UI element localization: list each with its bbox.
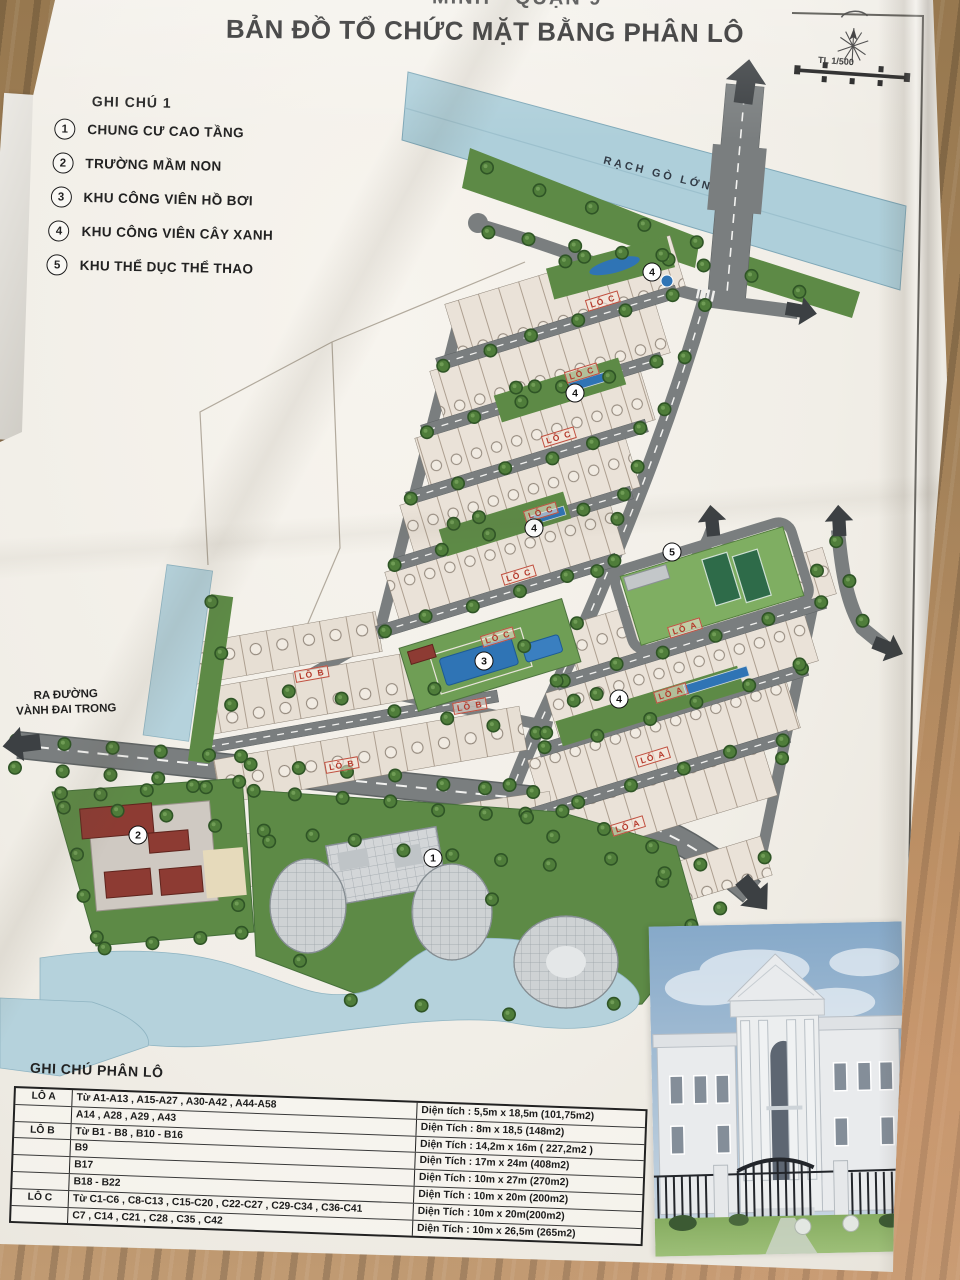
tree-icon — [643, 712, 657, 726]
legend-item-label: KHU THỂ DỤC THỂ THAO — [80, 258, 254, 277]
tree-icon — [689, 695, 703, 709]
pond — [661, 275, 673, 287]
tree-icon — [154, 745, 168, 759]
tree-icon — [247, 784, 261, 798]
tree-icon — [344, 993, 358, 1007]
tree-icon — [202, 748, 216, 762]
tree-icon — [204, 595, 218, 609]
tree-icon — [538, 740, 552, 754]
page-title: BẢN ĐỒ TỔ CHỨC MẶT BẰNG PHÂN LÔ — [130, 13, 840, 50]
map-marker-4: 4 — [610, 690, 629, 709]
tree-icon — [539, 726, 553, 740]
tree-icon — [387, 704, 401, 718]
tree-icon — [637, 218, 651, 232]
tree-icon — [481, 225, 495, 239]
tree-icon — [658, 402, 672, 416]
photographed-site-plan-scene: { "header": { "top_line_fragment": "MINH… — [0, 0, 960, 1280]
tree-icon — [447, 517, 461, 531]
tree-icon — [713, 901, 727, 915]
tree-icon — [514, 395, 528, 409]
tree-icon — [586, 436, 600, 450]
tree-icon — [645, 840, 659, 854]
map-marker-4: 4 — [566, 384, 585, 403]
tree-icon — [814, 595, 828, 609]
tree-icon — [348, 833, 362, 847]
tree-icon — [517, 639, 531, 653]
tree-icon — [208, 819, 222, 833]
tree-icon — [435, 543, 449, 557]
tree-icon — [610, 657, 624, 671]
tree-icon — [420, 425, 434, 439]
tree-icon — [494, 853, 508, 867]
parcel-group-cell — [14, 1138, 72, 1156]
tree-icon — [186, 779, 200, 793]
tree-icon — [560, 569, 574, 583]
tree-icon — [723, 745, 737, 759]
tree-icon — [383, 794, 397, 808]
tree-icon — [199, 780, 213, 794]
legend-number-badge: 1 — [54, 118, 75, 139]
tree-icon — [624, 778, 638, 792]
tree-icon — [571, 795, 585, 809]
tree-icon — [678, 350, 692, 364]
tree-icon — [388, 558, 402, 572]
map-marker-4: 4 — [643, 263, 662, 282]
tree-icon — [111, 804, 125, 818]
parcel-group-cell: LÔ B — [14, 1122, 72, 1140]
tree-icon — [480, 161, 494, 175]
parcel-table: LÔ ATừ A1-A13 , A15-A27 , A30-A42 , A44-… — [9, 1086, 648, 1247]
tree-icon — [666, 288, 680, 302]
tree-icon — [745, 269, 759, 283]
tree-icon — [57, 737, 71, 751]
tree-icon — [482, 528, 496, 542]
tree-icon — [472, 510, 486, 524]
tree-icon — [842, 574, 856, 588]
tree-icon — [793, 657, 807, 671]
tree-icon — [436, 359, 450, 373]
map-marker-5: 5 — [663, 543, 682, 562]
tree-icon — [693, 858, 707, 872]
tree-icon — [415, 999, 429, 1013]
tree-icon — [615, 246, 629, 260]
tree-icon — [509, 381, 523, 395]
legend-number-badge: 5 — [46, 254, 67, 275]
building-photo — [649, 921, 909, 1256]
legend-item-2: 2TRƯỜNG MẦM NON — [48, 152, 408, 181]
tree-icon — [590, 564, 604, 578]
legend-item-3: 3KHU CÔNG VIÊN HỒ BƠI — [48, 186, 408, 215]
tree-icon — [520, 810, 534, 824]
kindergarten-area — [52, 778, 254, 946]
tree-icon — [378, 624, 392, 638]
tree-icon — [214, 646, 228, 660]
tree-icon — [607, 997, 621, 1011]
map-paper-sheet: MINH - QUẬN 9 BẢN ĐỒ TỔ CHỨC MẶT BẰNG PH… — [0, 0, 960, 1280]
tree-icon — [633, 421, 647, 435]
tree-icon — [232, 775, 246, 789]
tree-icon — [567, 694, 581, 708]
tree-icon — [631, 460, 645, 474]
legend-item-4: 4KHU CÔNG VIÊN CÂY XANH — [47, 220, 407, 249]
legend-number-badge: 3 — [50, 186, 71, 207]
tree-icon — [77, 889, 91, 903]
parcel-group-cell — [11, 1206, 69, 1224]
tree-icon — [545, 451, 559, 465]
tree-icon — [617, 487, 631, 501]
tree-icon — [761, 612, 775, 626]
tree-icon — [479, 807, 493, 821]
tree-icon — [513, 584, 527, 598]
tree-icon — [610, 512, 624, 526]
tree-icon — [655, 248, 669, 262]
legend-item-5: 5KHU THỂ DỤC THỂ THAO — [46, 254, 406, 283]
tree-icon — [570, 616, 584, 630]
tree-icon — [618, 303, 632, 317]
tree-icon — [604, 852, 618, 866]
parcel-group-cell: LÔ C — [12, 1189, 70, 1207]
tree-icon — [597, 822, 611, 836]
tree-icon — [555, 804, 569, 818]
legend-item-1: 1CHUNG CƯ CAO TẦNG — [49, 118, 409, 147]
tree-icon — [388, 768, 402, 782]
tree-icon — [335, 692, 349, 706]
tree-icon — [576, 503, 590, 517]
tree-icon — [235, 926, 249, 940]
tree-icon — [543, 858, 557, 872]
tree-icon — [571, 313, 585, 327]
legend-list: 1CHUNG CƯ CAO TẦNG2TRƯỜNG MẦM NON3KHU CÔ… — [46, 118, 409, 283]
tree-icon — [776, 733, 790, 747]
tree-icon — [522, 232, 536, 246]
tree-icon — [658, 866, 672, 880]
tree-icon — [70, 847, 84, 861]
parcel-group-cell: LÔ A — [15, 1088, 73, 1106]
legend-item-label: KHU CÔNG VIÊN HỒ BƠI — [83, 190, 253, 209]
tree-icon — [467, 410, 481, 424]
tree-icon — [288, 787, 302, 801]
parcel-group-cell — [13, 1155, 71, 1173]
tree-icon — [602, 370, 616, 384]
tree-icon — [404, 492, 418, 506]
tree-icon — [292, 761, 306, 775]
tree-icon — [856, 614, 870, 628]
tree-icon — [792, 285, 806, 299]
tree-icon — [502, 1007, 516, 1021]
tree-icon — [585, 201, 599, 215]
compass-icon — [837, 11, 870, 63]
tree-icon — [427, 682, 441, 696]
tree-icon — [231, 898, 245, 912]
cropped-header-line: MINH - QUẬN 9 — [432, 0, 603, 11]
parcel-group-cell — [15, 1105, 73, 1123]
tree-icon — [451, 476, 465, 490]
legend-item-label: KHU CÔNG VIÊN CÂY XANH — [81, 224, 273, 243]
tree-icon — [742, 678, 756, 692]
tree-icon — [98, 941, 112, 955]
tree-icon — [466, 599, 480, 613]
tree-icon — [431, 803, 445, 817]
tree-icon — [419, 609, 433, 623]
tree-icon — [524, 328, 538, 342]
tree-icon — [550, 674, 564, 688]
tree-icon — [486, 719, 500, 733]
tree-icon — [709, 629, 723, 643]
tree-icon — [590, 729, 604, 743]
tree-icon — [775, 751, 789, 765]
tree-icon — [677, 762, 691, 776]
legend-item-label: TRƯỜNG MẦM NON — [85, 156, 222, 174]
tree-icon — [103, 768, 117, 782]
tree-icon — [336, 791, 350, 805]
tree-icon — [690, 235, 704, 249]
tree-icon — [94, 787, 108, 801]
tree-icon — [8, 761, 22, 775]
tree-icon — [440, 711, 454, 725]
tree-icon — [577, 250, 591, 264]
tree-icon — [568, 239, 582, 253]
west-exit-label: RA ĐƯỜNG VÀNH ĐAI TRONG — [0, 686, 132, 721]
tree-icon — [54, 786, 68, 800]
tree-icon — [145, 936, 159, 950]
tree-icon — [193, 931, 207, 945]
tree-icon — [483, 344, 497, 358]
tree-icon — [758, 850, 772, 864]
tree-icon — [106, 741, 120, 755]
tree-icon — [57, 801, 71, 815]
map-marker-1: 1 — [424, 849, 443, 868]
tree-icon — [532, 183, 546, 197]
tree-icon — [698, 298, 712, 312]
tree-icon — [234, 749, 248, 763]
tree-icon — [293, 954, 307, 968]
tree-icon — [649, 355, 663, 369]
legend: GHI CHÚ 1 1CHUNG CƯ CAO TẦNG2TRƯỜNG MẦM … — [46, 92, 410, 295]
building-photo-art — [649, 921, 909, 1256]
tree-icon — [282, 684, 296, 698]
parcel-group-cell — [12, 1172, 70, 1190]
tree-icon — [526, 785, 540, 799]
tree-icon — [810, 564, 824, 578]
tree-icon — [151, 771, 165, 785]
tree-icon — [498, 461, 512, 475]
map-marker-4: 4 — [525, 519, 544, 538]
tree-icon — [485, 892, 499, 906]
tree-icon — [478, 781, 492, 795]
tree-icon — [445, 848, 459, 862]
tree-icon — [397, 843, 411, 857]
tree-icon — [436, 778, 450, 792]
tree-icon — [159, 809, 173, 823]
tree-icon — [607, 554, 621, 568]
map-marker-3: 3 — [475, 652, 494, 671]
legend-item-label: CHUNG CƯ CAO TẦNG — [87, 122, 244, 140]
tree-icon — [656, 646, 670, 660]
tree-icon — [546, 830, 560, 844]
map-marker-2: 2 — [129, 826, 148, 845]
tree-icon — [558, 254, 572, 268]
tree-icon — [590, 687, 604, 701]
tree-icon — [224, 698, 238, 712]
tree-icon — [503, 778, 517, 792]
tree-icon — [56, 764, 70, 778]
tree-icon — [697, 258, 711, 272]
tree-icon — [262, 834, 276, 848]
legend-number-badge: 4 — [48, 220, 69, 241]
legend-number-badge: 2 — [52, 152, 73, 173]
tree-icon — [140, 783, 154, 797]
tree-icon — [306, 828, 320, 842]
tree-icon — [528, 379, 542, 393]
